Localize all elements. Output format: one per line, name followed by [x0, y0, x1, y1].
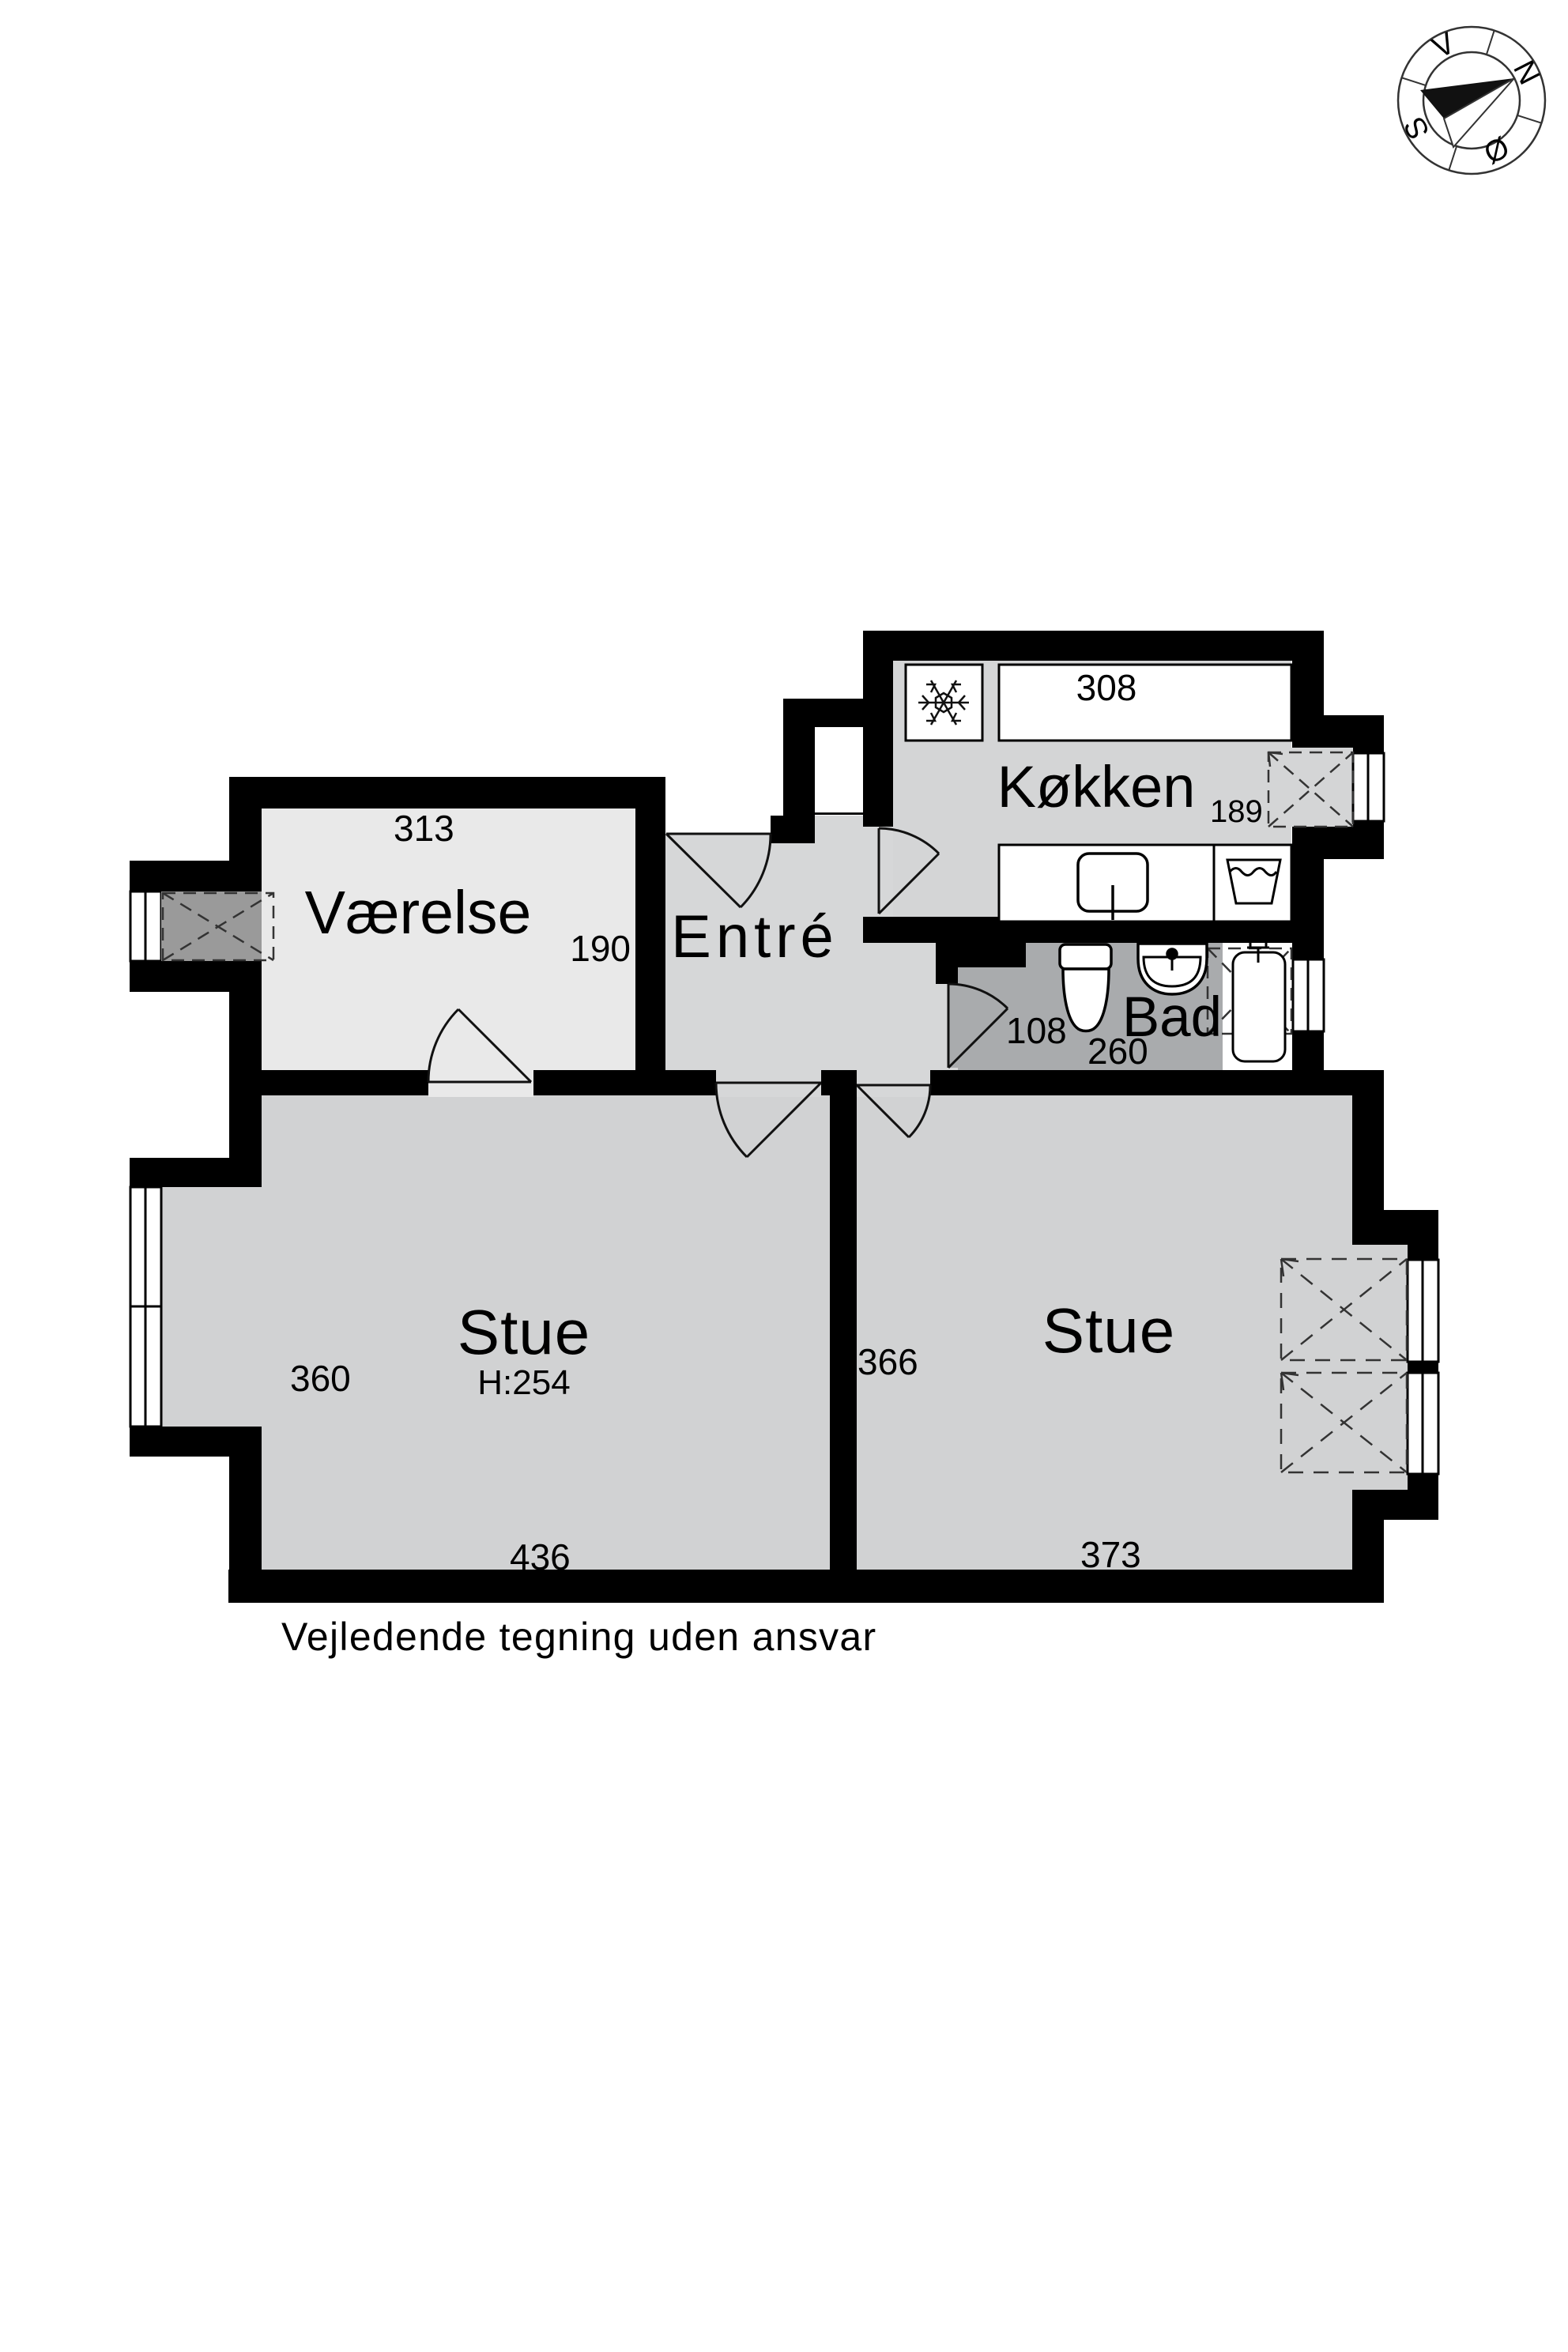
svg-text:313: 313: [394, 808, 454, 849]
svg-text:Køkken: Køkken: [997, 754, 1196, 820]
svg-text:Vejledende tegning uden ansvar: Vejledende tegning uden ansvar: [281, 1615, 876, 1659]
svg-text:Stue: Stue: [1042, 1295, 1176, 1366]
svg-text:373: 373: [1080, 1534, 1141, 1575]
svg-text:308: 308: [1076, 667, 1137, 708]
svg-text:Stue: Stue: [458, 1297, 591, 1367]
svg-text:190: 190: [570, 928, 631, 969]
svg-text:260: 260: [1087, 1031, 1148, 1072]
svg-text:Entré: Entré: [671, 903, 839, 971]
svg-text:366: 366: [857, 1341, 918, 1382]
svg-text:189: 189: [1210, 794, 1263, 829]
svg-text:436: 436: [510, 1536, 571, 1577]
svg-text:H:254: H:254: [477, 1363, 570, 1402]
svg-text:Værelse: Værelse: [305, 879, 532, 947]
svg-text:108: 108: [1006, 1010, 1067, 1051]
svg-text:360: 360: [290, 1358, 351, 1399]
